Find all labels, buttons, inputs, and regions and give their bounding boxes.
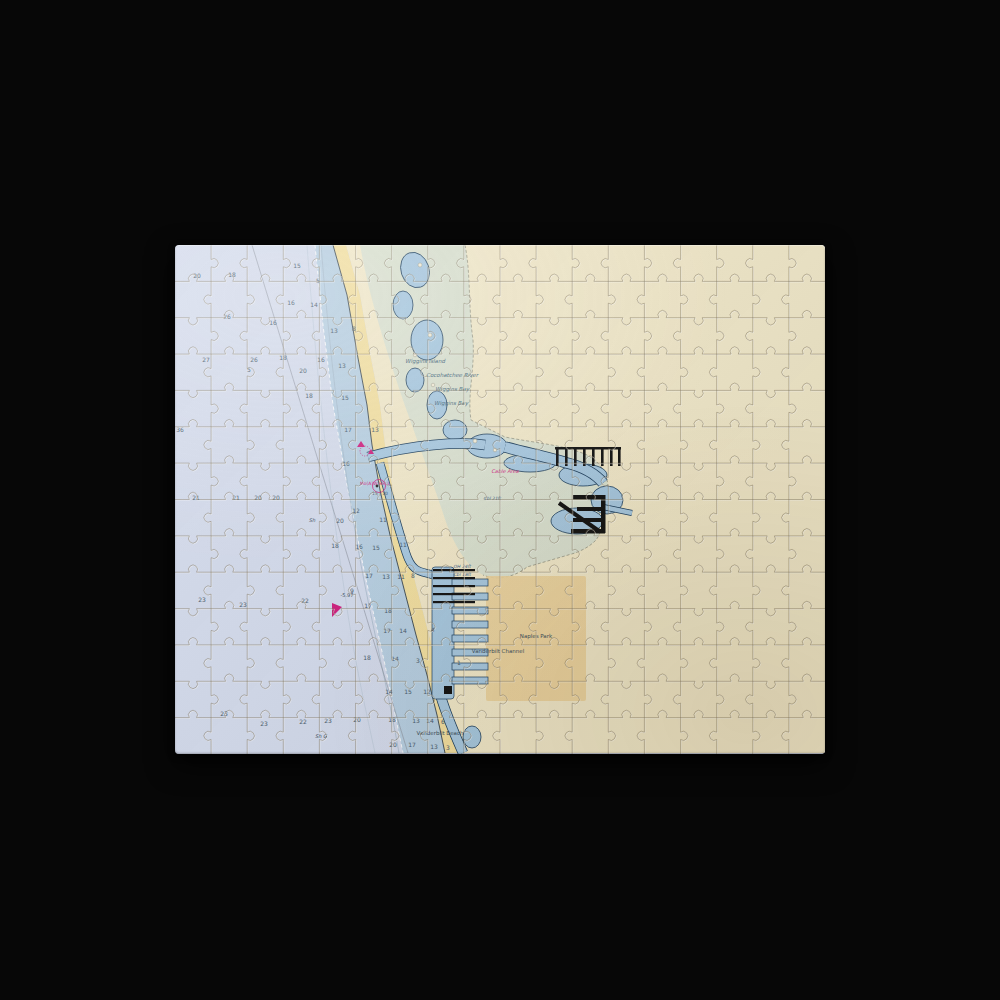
depth-sounding: 27: [202, 356, 210, 363]
depth-sounding: 20: [193, 272, 201, 279]
depth-sounding: 16: [287, 299, 295, 306]
map-label: OH 24ft: [453, 564, 472, 569]
depth-sounding: 23: [239, 601, 247, 608]
depth-sounding: 23: [260, 720, 268, 727]
depth-sounding: 3: [416, 657, 420, 664]
depth-sounding: 23: [198, 596, 206, 603]
photo-background: 2018155161426161382726181613520181536171…: [0, 0, 1000, 1000]
depth-sounding: 13: [430, 743, 438, 750]
depth-sounding: 20: [389, 741, 397, 748]
depth-sounding: 11: [397, 573, 405, 580]
depth-sounding: 20: [336, 517, 344, 524]
depth-sounding: 3: [446, 744, 450, 751]
chart-landmark-square: [444, 686, 452, 694]
depth-sounding: 17: [408, 741, 416, 748]
depth-sounding: 20: [299, 367, 307, 374]
map-label: Vanderbilt Channel: [472, 648, 525, 654]
depth-sounding: 13: [338, 362, 346, 369]
depth-sounding: 18: [384, 607, 392, 614]
depth-sounding: 15: [372, 544, 380, 551]
map-label: Wiggins Bay: [434, 400, 469, 407]
depth-sounding: 11: [379, 516, 387, 523]
depth-sounding: 22: [299, 718, 307, 725]
depth-sounding: 1: [457, 659, 461, 666]
jigsaw-puzzle: 2018155161426161382726181613520181536171…: [175, 245, 825, 754]
depth-sounding: 13: [330, 327, 338, 334]
depth-sounding: 20: [353, 716, 361, 723]
depth-sounding: 13: [382, 573, 390, 580]
map-label: Vanderbilt Beach: [417, 730, 464, 736]
depth-sounding: 12: [423, 688, 431, 695]
depth-sounding: 6: [441, 718, 445, 725]
depth-sounding: 14: [310, 301, 318, 308]
depth-sounding: 11: [399, 541, 407, 548]
depth-sounding: 18: [363, 654, 371, 661]
depth-sounding: 15: [293, 262, 301, 269]
map-label: Sh: [309, 517, 316, 523]
depth-sounding: 16: [317, 356, 325, 363]
map-label: Wiggins Island: [405, 358, 446, 365]
map-label: Mo(A)W BELL: [360, 481, 391, 486]
depth-sounding: 18: [305, 392, 313, 399]
depth-sounding: 26: [250, 356, 258, 363]
map-label: Cable Area: [491, 468, 519, 474]
depth-sounding: 14: [399, 627, 407, 634]
nautical-chart: 2018155161426161382726181613520181536171…: [175, 245, 825, 754]
